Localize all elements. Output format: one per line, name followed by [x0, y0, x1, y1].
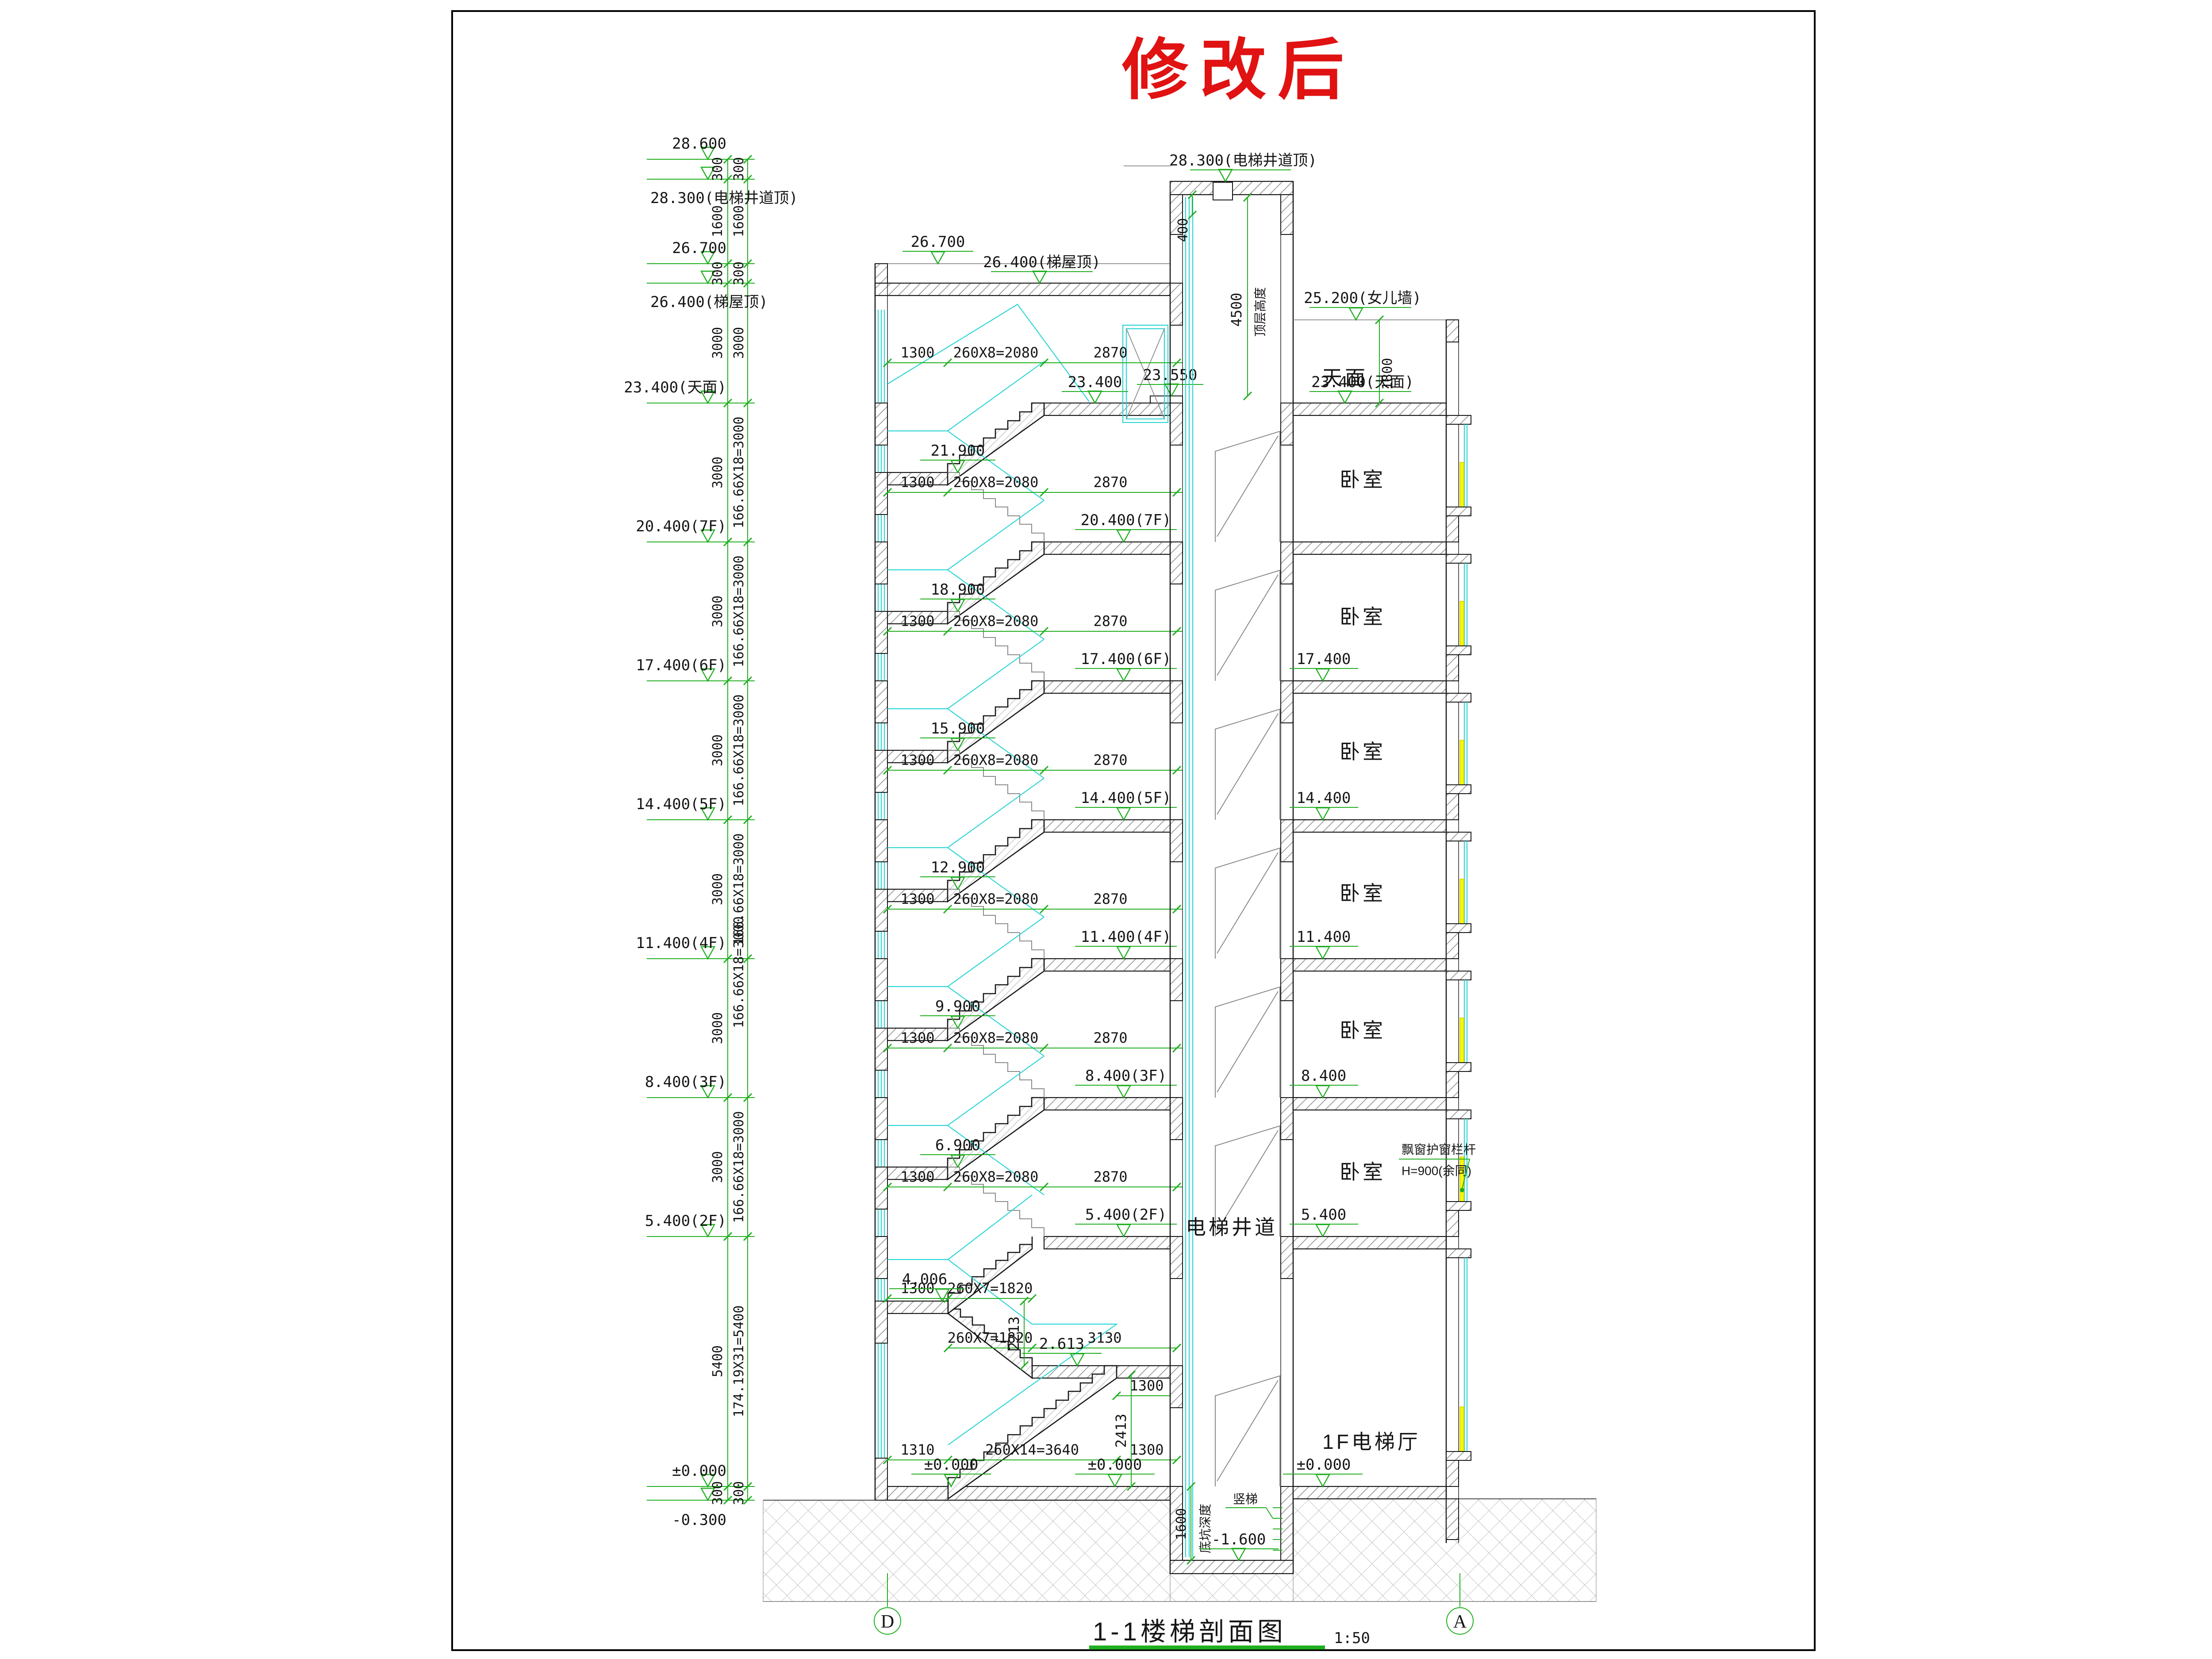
svg-text:2213: 2213: [1006, 1316, 1022, 1350]
svg-text:1300: 1300: [900, 752, 934, 768]
level-label: 26.400(梯屋顶): [650, 293, 768, 311]
svg-text:±0.000: ±0.000: [1297, 1456, 1351, 1474]
svg-text:260X8=2080: 260X8=2080: [953, 613, 1039, 630]
svg-text:A: A: [1453, 1612, 1467, 1632]
svg-text:260X8=2080: 260X8=2080: [953, 752, 1039, 768]
level-label: 23.400(天面): [624, 379, 726, 396]
svg-text:8.400: 8.400: [1301, 1067, 1346, 1085]
level-label: 5.400(2F): [645, 1212, 726, 1230]
dim-chain-2: 300 1600 300 3000 166.66X18=3000 166.66X…: [731, 157, 747, 1505]
room-label: 卧室: [1340, 740, 1386, 763]
stair-roof-slab: [875, 283, 1170, 296]
svg-text:2870: 2870: [1093, 1168, 1127, 1185]
svg-text:21.900: 21.900: [931, 442, 985, 460]
svg-text:5.400(2F): 5.400(2F): [1085, 1206, 1167, 1224]
svg-text:-1.600: -1.600: [1212, 1531, 1266, 1548]
svg-text:5400: 5400: [710, 1345, 726, 1377]
svg-text:底坑深度: 底坑深度: [1198, 1504, 1212, 1553]
left-elevation-column: 28.600 28.300(电梯井道顶) 26.700 26.400(梯屋顶) …: [624, 135, 798, 1529]
svg-text:300: 300: [731, 1481, 747, 1505]
svg-text:H=900(余同): H=900(余同): [1402, 1164, 1471, 1178]
svg-text:D: D: [881, 1612, 894, 1632]
level-label: 28.600: [672, 135, 726, 153]
svg-text:166.66X18=3000: 166.66X18=3000: [731, 417, 747, 529]
svg-text:17.400: 17.400: [1297, 650, 1351, 668]
svg-text:18.900: 18.900: [931, 581, 985, 599]
stair-tower: 1300 260X8=2080 2870 1300260X8=20802870 …: [875, 233, 1203, 1500]
svg-text:3000: 3000: [710, 1151, 726, 1183]
svg-text:5.400: 5.400: [1301, 1206, 1346, 1224]
svg-text:顶层高度: 顶层高度: [1253, 287, 1267, 337]
svg-text:300: 300: [731, 261, 747, 285]
room-label: 卧室: [1340, 468, 1386, 491]
svg-text:2870: 2870: [1093, 752, 1127, 768]
svg-text:300: 300: [710, 1481, 726, 1505]
room-label: 卧室: [1340, 605, 1386, 628]
svg-text:400: 400: [1175, 218, 1191, 242]
shaft-wall-piers: [1170, 195, 1293, 1574]
svg-text:4500: 4500: [1228, 292, 1245, 326]
shaft-name: 电梯井道: [1186, 1216, 1278, 1239]
svg-text:25.200(女儿墙): 25.200(女儿墙): [1304, 289, 1421, 307]
svg-text:11.400: 11.400: [1297, 928, 1351, 946]
level-label: ±0.000: [672, 1462, 726, 1480]
svg-text:1-1楼梯剖面图: 1-1楼梯剖面图: [1093, 1617, 1286, 1646]
svg-text:3000: 3000: [710, 595, 726, 627]
svg-text:±0.000: ±0.000: [924, 1456, 979, 1474]
svg-text:20.400(7F): 20.400(7F): [1081, 511, 1171, 529]
svg-text:166.66X18=3000: 166.66X18=3000: [731, 556, 747, 668]
level-label: -0.300: [672, 1511, 726, 1529]
level-label: 17.400(6F): [636, 657, 726, 674]
svg-text:166.66X18=3000: 166.66X18=3000: [731, 695, 747, 806]
svg-text:260X14=3640: 260X14=3640: [985, 1441, 1079, 1458]
svg-text:3000: 3000: [710, 873, 726, 905]
room-label: 卧室: [1340, 1160, 1386, 1183]
room-label: 卧室: [1340, 882, 1386, 905]
svg-text:1300: 1300: [1129, 1377, 1164, 1394]
svg-text:260X8=2080: 260X8=2080: [953, 891, 1039, 907]
right-wing: 25.200(女儿墙) 天面 1800 23.400(天面) 17.400 14…: [1283, 289, 1476, 1543]
svg-text:300: 300: [710, 157, 726, 181]
hall-label: 1F电梯厅: [1322, 1430, 1421, 1453]
svg-text:14.400: 14.400: [1297, 789, 1351, 807]
svg-text:23.400: 23.400: [1068, 373, 1122, 391]
footer-title: 1-1楼梯剖面图 1:50: [1089, 1617, 1370, 1647]
svg-text:23.400(天面): 23.400(天面): [1311, 373, 1414, 391]
svg-text:1300: 1300: [900, 1029, 934, 1046]
svg-text:1300: 1300: [900, 344, 934, 361]
flight-mezz-2: [948, 1237, 1032, 1313]
shaft-top-label: 28.300(电梯井道顶): [1169, 152, 1317, 169]
svg-text:±0.000: ±0.000: [1088, 1456, 1142, 1474]
svg-text:1300: 1300: [900, 474, 934, 491]
level-label: 11.400(4F): [636, 934, 726, 952]
svg-text:300: 300: [710, 261, 726, 285]
room-label: 卧室: [1340, 1019, 1386, 1042]
svg-text:飘窗护窗栏杆: 飘窗护窗栏杆: [1402, 1143, 1476, 1156]
svg-text:1600: 1600: [1174, 1508, 1189, 1540]
svg-text:3000: 3000: [710, 734, 726, 766]
svg-text:166.66X18=3000: 166.66X18=3000: [731, 916, 747, 1028]
svg-text:166.66X18=3000: 166.66X18=3000: [731, 1111, 747, 1223]
svg-text:15.900: 15.900: [931, 720, 985, 737]
svg-text:2870: 2870: [1093, 474, 1127, 491]
svg-text:3000: 3000: [710, 327, 726, 359]
svg-text:17.400(6F): 17.400(6F): [1081, 650, 1171, 668]
level-label: 8.400(3F): [645, 1073, 726, 1091]
ladder-label: 竖梯: [1233, 1492, 1258, 1506]
elevator-shaft: 28.300(电梯井道顶) 400 4500 顶层高度 电梯井道 1600 底坑…: [1124, 152, 1317, 1574]
level-label: 20.400(7F): [636, 518, 726, 535]
level-label: 14.400(5F): [636, 795, 726, 813]
svg-text:1300: 1300: [900, 891, 934, 907]
svg-text:11.400(4F): 11.400(4F): [1081, 928, 1171, 946]
svg-text:1300: 1300: [900, 613, 934, 630]
flight-ground: [948, 1366, 1117, 1499]
svg-text:26.700: 26.700: [911, 233, 965, 251]
svg-text:300: 300: [731, 157, 747, 181]
svg-text:3000: 3000: [710, 1012, 726, 1044]
drawing-canvas: 修改后 28.600 28.3: [0, 0, 2212, 1659]
level-label: 28.300(电梯井道顶): [650, 189, 798, 207]
svg-text:1600: 1600: [710, 205, 726, 237]
svg-text:1600: 1600: [731, 205, 747, 237]
svg-text:2.613: 2.613: [1039, 1335, 1084, 1353]
svg-text:26.400(梯屋顶): 26.400(梯屋顶): [983, 253, 1101, 271]
svg-text:2870: 2870: [1093, 891, 1127, 907]
svg-text:6.900: 6.900: [935, 1137, 980, 1154]
svg-text:4.006: 4.006: [902, 1271, 947, 1288]
svg-text:2413: 2413: [1113, 1413, 1129, 1448]
svg-text:3000: 3000: [731, 327, 747, 359]
svg-text:260X8=2080: 260X8=2080: [953, 1168, 1039, 1185]
svg-text:2870: 2870: [1093, 1029, 1127, 1046]
svg-text:3000: 3000: [710, 457, 726, 488]
svg-text:174.19X31=5400: 174.19X31=5400: [731, 1306, 747, 1417]
svg-text:2870: 2870: [1093, 613, 1127, 630]
svg-text:8.400(3F): 8.400(3F): [1085, 1067, 1167, 1085]
svg-text:2870: 2870: [1093, 344, 1127, 361]
svg-text:3130: 3130: [1087, 1329, 1121, 1346]
page-title: 修改后: [1122, 33, 1356, 107]
svg-text:260X8=2080: 260X8=2080: [953, 344, 1039, 361]
svg-text:9.900: 9.900: [935, 998, 980, 1015]
stair-slabs: [887, 396, 1183, 1500]
svg-text:1300: 1300: [900, 1168, 934, 1185]
svg-text:12.900: 12.900: [931, 859, 985, 876]
svg-text:260X8=2080: 260X8=2080: [953, 474, 1039, 491]
dim-chain-1: 300 1600 300 3000 3000 3000 3000 3000 30…: [710, 157, 726, 1505]
svg-text:14.400(5F): 14.400(5F): [1081, 789, 1171, 807]
svg-text:260X8=2080: 260X8=2080: [953, 1029, 1039, 1046]
level-label: 26.700: [672, 239, 726, 257]
svg-text:1:50: 1:50: [1334, 1629, 1370, 1647]
